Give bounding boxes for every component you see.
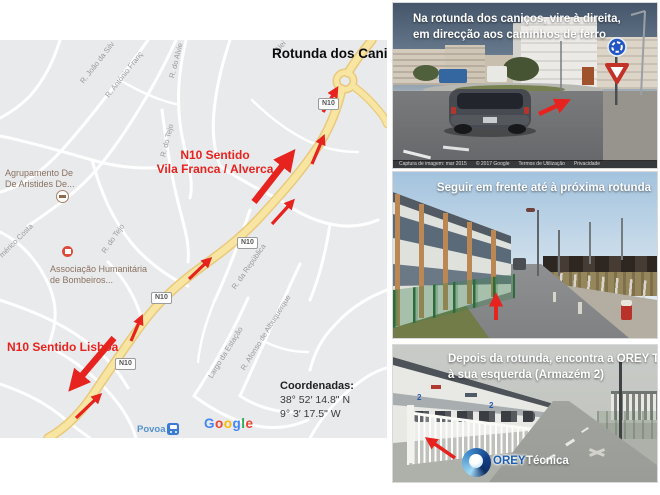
coordinates-heading: Coordenadas: [280,380,354,392]
direction-note-south: N10 Sentido Lisboa [7,340,118,354]
yield-sign [607,65,627,82]
streetview-photo-straight: Seguir em frente até à próxima rotunda [393,172,657,338]
google-letter: o [215,416,224,431]
coordinates-longitude: 9° 3′ 17.5" W [280,407,354,421]
poi-school-label: Agrupamento De De Aristides De... [5,168,75,189]
streetview3-caption: Depois da rotunda, encontra a OREY Técni… [448,351,657,383]
train-station-icon [167,423,179,435]
map-panel: N10 N10 N10 N10 R. João da Silv R. Antón… [0,40,387,438]
road-shield-n10: N10 [151,292,172,304]
caption: Seguir em frente até à próxima rotunda [437,180,651,196]
attribution-privacy-link: Privacidade [574,161,600,167]
station-label: Povoa [137,424,166,435]
poi-firestation-label: Associação Humanitária de Bombeiros... [50,264,147,285]
streetview-photo-orey: 2 2 OREY Técnica Depois da rotunda, enco… [393,345,657,482]
orey-logo-icon [462,448,491,477]
poi-school-line2: De Aristides De... [5,179,75,190]
direction-arrow [429,440,455,458]
road-shield-n10: N10 [318,98,339,110]
orey-logo-suffix: Técnica [526,455,569,467]
road-shield-n10: N10 [237,237,258,249]
school-icon [56,190,69,203]
train-icon-window [170,425,177,429]
direction-arrow [539,102,565,114]
coordinates-block: Coordenadas: 38° 52′ 14.8" N 9° 3′ 17.5"… [280,379,354,421]
google-letter: e [246,416,254,431]
direction-note-north-line2: Vila Franca / Alverca [148,162,282,176]
train-icon-wheel [175,431,177,433]
caption-line2: à sua esquerda (Armazém 2) [448,367,657,383]
google-letter: G [204,416,215,431]
attribution-capture-date: Captura de imagem: mar 2015 [399,161,467,167]
google-letter: g [233,416,242,431]
attribution-copyright: © 2017 Google [476,161,510,167]
direction-note-north: N10 Sentido Vila Franca / Alverca [148,148,282,176]
streetview2-overlay [393,172,657,338]
map-title: Rotunda dos Caniços [272,46,387,61]
google-logo: Google [204,415,254,433]
caption-line1: Na rotunda dos caniços, vire à direita, [413,11,621,27]
google-letter: o [224,416,233,431]
streetview2-caption: Seguir em frente até à próxima rotunda [437,180,651,196]
streetview-photo-roundabout: Na rotunda dos caniços, vire à direita, … [393,3,657,168]
streetview1-caption: Na rotunda dos caniços, vire à direita, … [413,11,621,43]
firestation-icon-glyph [65,249,71,254]
school-icon-cap [59,195,66,198]
directions-slide: N10 N10 N10 N10 R. João da Silv R. Antón… [0,0,660,495]
coordinates-latitude: 38° 52′ 14.8" N [280,393,354,407]
poi-school-line1: Agrupamento De [5,168,75,179]
train-icon-wheel [170,431,172,433]
poi-firestation-line1: Associação Humanitária [50,264,147,275]
attribution-bar: Captura de imagem: mar 2015 © 2017 Googl… [393,160,657,168]
orey-logo-core [469,454,483,468]
caption-line2: em direcção aos caminhos de ferro [413,27,621,43]
road-shield-n10: N10 [115,358,136,370]
attribution-terms-link: Termos de Utilização [519,161,565,167]
firestation-icon [62,246,73,257]
poi-firestation-line2: de Bombeiros... [50,275,147,286]
car [444,89,536,137]
orey-logo-name: OREY [493,455,526,467]
caption-line1: Depois da rotunda, encontra a OREY Técni… [448,351,657,367]
direction-note-north-line1: N10 Sentido [148,148,282,162]
